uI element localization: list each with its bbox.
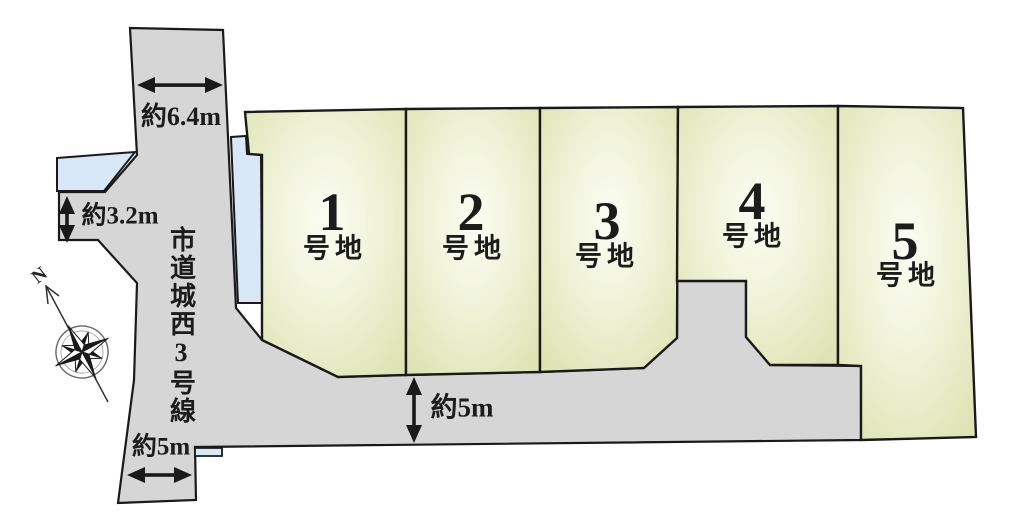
lot-1-suffix: 号地: [303, 236, 367, 263]
lot-3-number: 3: [594, 194, 621, 248]
lot-subdivision-map: 約6.4m 約3.2m 約5m 約5m 市道城西3号線 N 1 号地 2 号地 …: [0, 0, 1024, 526]
lot-4-suffix: 号地: [722, 224, 786, 251]
compass-rose-icon: [41, 286, 122, 402]
lot-2-suffix: 号地: [442, 236, 506, 263]
dimension-label-south-left-width: 約5m: [132, 435, 190, 460]
dimension-label-south-center-width: 約5m: [431, 395, 494, 422]
dimension-label-west-width: 約3.2m: [81, 204, 158, 229]
lot-2-number: 2: [458, 185, 485, 239]
road-name-label: 市道城西3号線: [163, 226, 200, 425]
water-strip-south: [195, 448, 222, 456]
lot-4-number: 4: [739, 174, 766, 228]
lot-3-suffix: 号地: [575, 244, 639, 271]
dimension-label-north-width: 約6.4m: [141, 104, 221, 130]
lot-1-number: 1: [319, 185, 346, 239]
lot-5-suffix: 号地: [876, 263, 940, 290]
